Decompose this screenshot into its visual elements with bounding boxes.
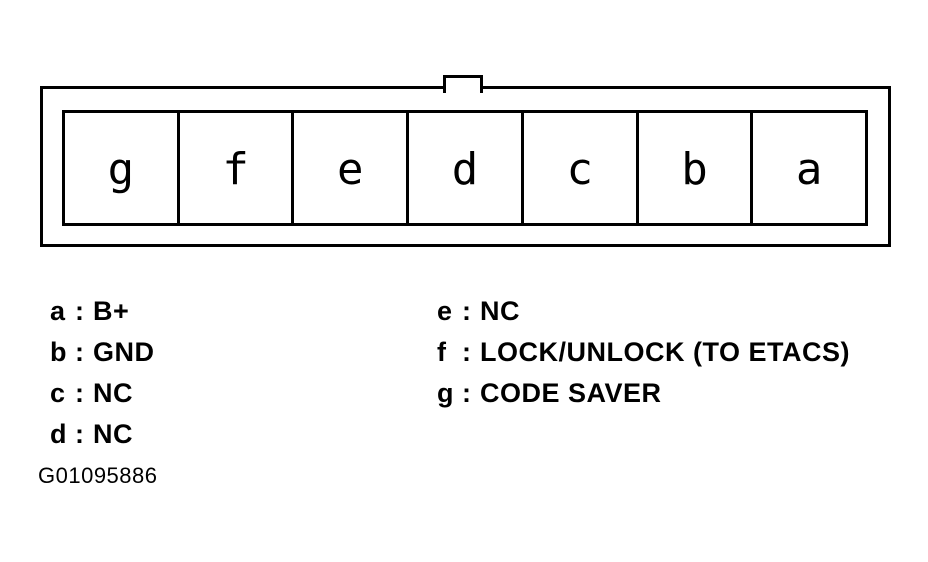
pin-cell-label: c xyxy=(566,148,593,192)
pin-cell-label: d xyxy=(452,148,479,192)
pin-cell-g: g xyxy=(65,113,177,223)
legend-pin-description: B+ xyxy=(93,291,129,332)
legend-row-e: e : NC xyxy=(437,291,850,332)
legend-pin-letter: f xyxy=(437,332,462,373)
legend-pin-letter: c xyxy=(50,373,75,414)
legend-row-f: f : LOCK/UNLOCK (TO ETACS) xyxy=(437,332,850,373)
legend-pin-description: NC xyxy=(480,291,520,332)
legend-row-g: g : CODE SAVER xyxy=(437,373,850,414)
legend-right-column: e : NC f : LOCK/UNLOCK (TO ETACS) g : CO… xyxy=(437,291,850,414)
legend-pin-description: CODE SAVER xyxy=(480,373,662,414)
legend-separator: : xyxy=(75,291,93,332)
pin-cell-a: a xyxy=(750,113,865,223)
legend-row-a: a : B+ xyxy=(50,291,155,332)
figure-id: G01095886 xyxy=(38,463,158,489)
pin-cell-label: g xyxy=(108,148,135,192)
legend-pin-description: LOCK/UNLOCK (TO ETACS) xyxy=(480,332,850,373)
pin-cell-label: f xyxy=(222,148,249,192)
pin-row: g f e d c b a xyxy=(62,110,868,226)
pin-cell-d: d xyxy=(406,113,521,223)
legend-row-d: d : NC xyxy=(50,414,155,455)
pin-cell-f: f xyxy=(177,113,292,223)
pin-cell-label: e xyxy=(337,148,364,192)
legend-pin-letter: b xyxy=(50,332,75,373)
legend-separator: : xyxy=(75,373,93,414)
connector-pinout-diagram: g f e d c b a a : B+ xyxy=(0,0,928,562)
legend-separator: : xyxy=(462,373,480,414)
legend-pin-description: NC xyxy=(93,414,133,455)
legend-left-column: a : B+ b : GND c : NC d : NC xyxy=(50,291,155,455)
pin-cell-e: e xyxy=(291,113,406,223)
legend-separator: : xyxy=(75,332,93,373)
legend-separator: : xyxy=(462,332,480,373)
legend-row-b: b : GND xyxy=(50,332,155,373)
legend-pin-letter: d xyxy=(50,414,75,455)
legend-pin-letter: g xyxy=(437,373,462,414)
pin-cell-label: b xyxy=(681,148,708,192)
connector-outline: g f e d c b a xyxy=(40,86,891,247)
legend-row-c: c : NC xyxy=(50,373,155,414)
legend-pin-description: GND xyxy=(93,332,155,373)
legend-separator: : xyxy=(462,291,480,332)
pin-cell-c: c xyxy=(521,113,636,223)
legend-separator: : xyxy=(75,414,93,455)
legend-pin-description: NC xyxy=(93,373,133,414)
legend-pin-letter: a xyxy=(50,291,75,332)
pin-cell-label: a xyxy=(796,148,823,192)
legend-pin-letter: e xyxy=(437,291,462,332)
connector-notch xyxy=(443,75,483,93)
pin-cell-b: b xyxy=(636,113,751,223)
